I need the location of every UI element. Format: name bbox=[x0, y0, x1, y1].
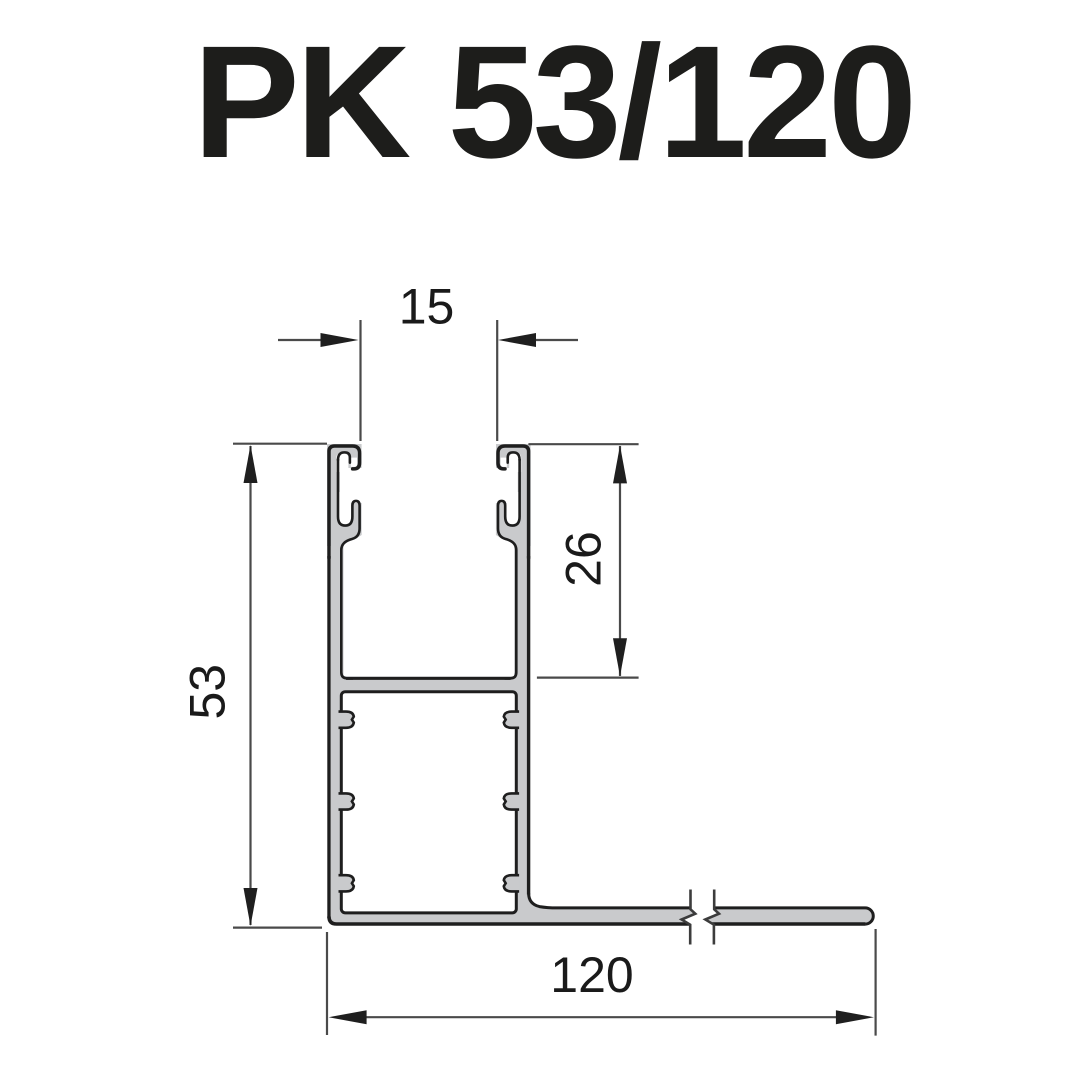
svg-text:15: 15 bbox=[399, 279, 455, 335]
svg-text:26: 26 bbox=[555, 531, 611, 587]
svg-text:53: 53 bbox=[180, 664, 236, 720]
svg-text:120: 120 bbox=[550, 947, 633, 1003]
